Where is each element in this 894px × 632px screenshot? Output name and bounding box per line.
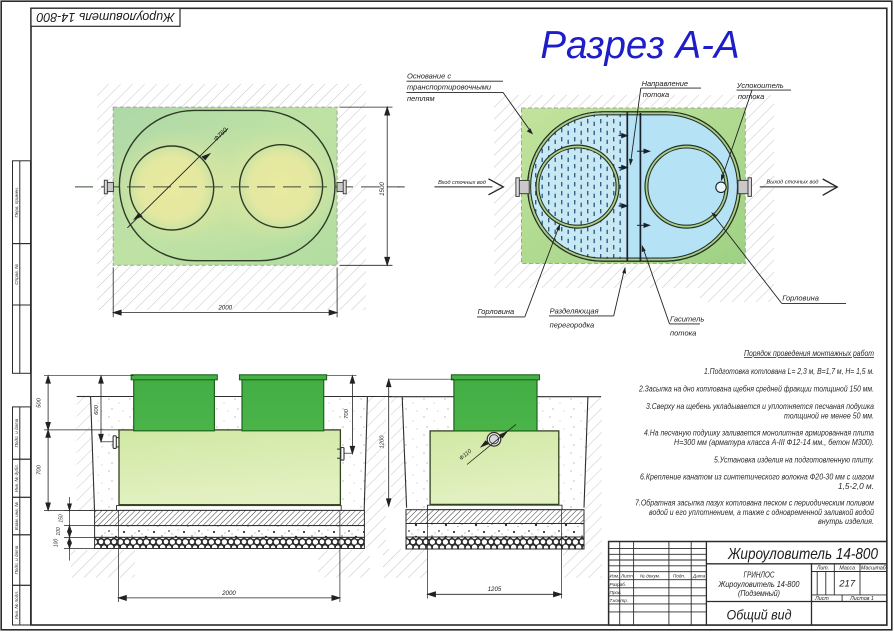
svg-text:петлям: петлям xyxy=(407,94,435,103)
svg-text:Разделяющая: Разделяющая xyxy=(550,307,599,316)
svg-text:Н=300 мм (арматура класса А-II: Н=300 мм (арматура класса А-III Ф12-14 м… xyxy=(674,438,874,447)
svg-text:Жироуловитель 14-800: Жироуловитель 14-800 xyxy=(36,10,175,24)
svg-text:потока: потока xyxy=(643,90,669,99)
svg-text:600: 600 xyxy=(94,404,100,414)
svg-text:Взам. инв. №: Взам. инв. № xyxy=(14,502,19,530)
svg-text:1205: 1205 xyxy=(488,586,502,593)
svg-text:Горловина: Горловина xyxy=(478,307,515,316)
svg-text:Масса: Масса xyxy=(839,565,855,571)
svg-text:100: 100 xyxy=(54,539,60,548)
svg-text:Разрез А-А: Разрез А-А xyxy=(540,24,739,67)
svg-text:Листов 1: Листов 1 xyxy=(849,596,874,602)
svg-text:Лит.: Лит. xyxy=(816,565,829,571)
svg-text:Масштаб: Масштаб xyxy=(861,565,887,571)
svg-text:потока: потока xyxy=(670,329,696,338)
svg-text:№ докум.: № докум. xyxy=(640,574,660,579)
svg-text:1.Подготовка котлована L= 2,3: 1.Подготовка котлована L= 2,3 м, B=1,7 м… xyxy=(704,367,874,376)
svg-text:водой и его уплотнением, а так: водой и его уплотнением, а также с однов… xyxy=(649,508,875,517)
svg-text:Жироуловитель 14-800: Жироуловитель 14-800 xyxy=(727,546,878,563)
svg-text:Лист: Лист xyxy=(814,596,829,602)
svg-text:700: 700 xyxy=(37,464,43,474)
svg-text:Горловина: Горловина xyxy=(782,294,819,303)
svg-text:транспортировочными: транспортировочными xyxy=(407,83,492,92)
svg-text:Основание с: Основание с xyxy=(407,72,451,81)
svg-text:700: 700 xyxy=(344,408,350,418)
svg-text:3.Сверху на щебень укладываетс: 3.Сверху на щебень укладывается и уплотн… xyxy=(646,402,875,411)
svg-text:1,5-2,0 м.: 1,5-2,0 м. xyxy=(838,482,874,491)
svg-text:150: 150 xyxy=(59,514,65,523)
svg-text:2000: 2000 xyxy=(221,590,236,597)
svg-text:2000: 2000 xyxy=(217,305,232,312)
svg-text:Лист: Лист xyxy=(620,574,633,579)
svg-text:Подп. и дата: Подп. и дата xyxy=(14,418,19,447)
svg-text:(Подземный): (Подземный) xyxy=(738,589,780,598)
svg-text:толщиной не менее 50 мм.: толщиной не менее 50 мм. xyxy=(784,411,874,420)
svg-text:Направление: Направление xyxy=(642,79,689,88)
svg-text:2.Засыпка на дно котлована щеб: 2.Засыпка на дно котлована щебня средней… xyxy=(638,385,874,394)
svg-text:Перв. примен.: Перв. примен. xyxy=(14,187,19,218)
svg-text:4.На песчаную подушку заливает: 4.На песчаную подушку заливается монолит… xyxy=(644,429,875,438)
svg-text:Пров.: Пров. xyxy=(610,590,622,595)
svg-text:500: 500 xyxy=(37,397,43,407)
svg-text:217: 217 xyxy=(838,579,856,590)
svg-text:Подп. и дата: Подп. и дата xyxy=(14,545,19,574)
svg-text:внутрь изделия.: внутрь изделия. xyxy=(818,517,874,526)
svg-text:Разраб.: Разраб. xyxy=(610,582,627,587)
svg-text:Порядок проведения монтажных р: Порядок проведения монтажных работ xyxy=(744,349,874,358)
svg-text:1500: 1500 xyxy=(379,182,386,196)
svg-text:Изм.: Изм. xyxy=(610,574,620,579)
svg-text:перегородка: перегородка xyxy=(550,321,595,330)
svg-text:5.Установка изделия на подгото: 5.Установка изделия на подготовленную пл… xyxy=(714,455,874,464)
svg-text:1200: 1200 xyxy=(380,435,386,449)
svg-text:Т.контр.: Т.контр. xyxy=(610,598,629,603)
svg-text:Гаситель: Гаситель xyxy=(670,315,704,324)
svg-text:6.Крепление канатом из синтети: 6.Крепление канатом из синтетического во… xyxy=(640,473,875,482)
svg-text:7.Обратная засыпка пазух котло: 7.Обратная засыпка пазух котлована песко… xyxy=(635,498,875,507)
svg-text:ГРИНЛОС: ГРИНЛОС xyxy=(744,571,775,580)
svg-text:Вход сточных вод: Вход сточных вод xyxy=(438,180,486,186)
svg-text:Подп.: Подп. xyxy=(673,574,685,579)
svg-text:Дата: Дата xyxy=(692,574,706,579)
svg-text:Общий вид: Общий вид xyxy=(727,608,792,623)
svg-text:100: 100 xyxy=(56,527,62,536)
svg-text:Выход сточных вод: Выход сточных вод xyxy=(766,179,818,185)
svg-text:Успокоитель: Успокоитель xyxy=(736,81,784,90)
svg-text:Инв. № подл.: Инв. № подл. xyxy=(14,591,19,620)
svg-text:Жироуловитель 14-800: Жироуловитель 14-800 xyxy=(718,580,800,589)
svg-text:Справ. №: Справ. № xyxy=(14,264,19,285)
svg-text:Инв. № дубл.: Инв. № дубл. xyxy=(14,464,19,492)
